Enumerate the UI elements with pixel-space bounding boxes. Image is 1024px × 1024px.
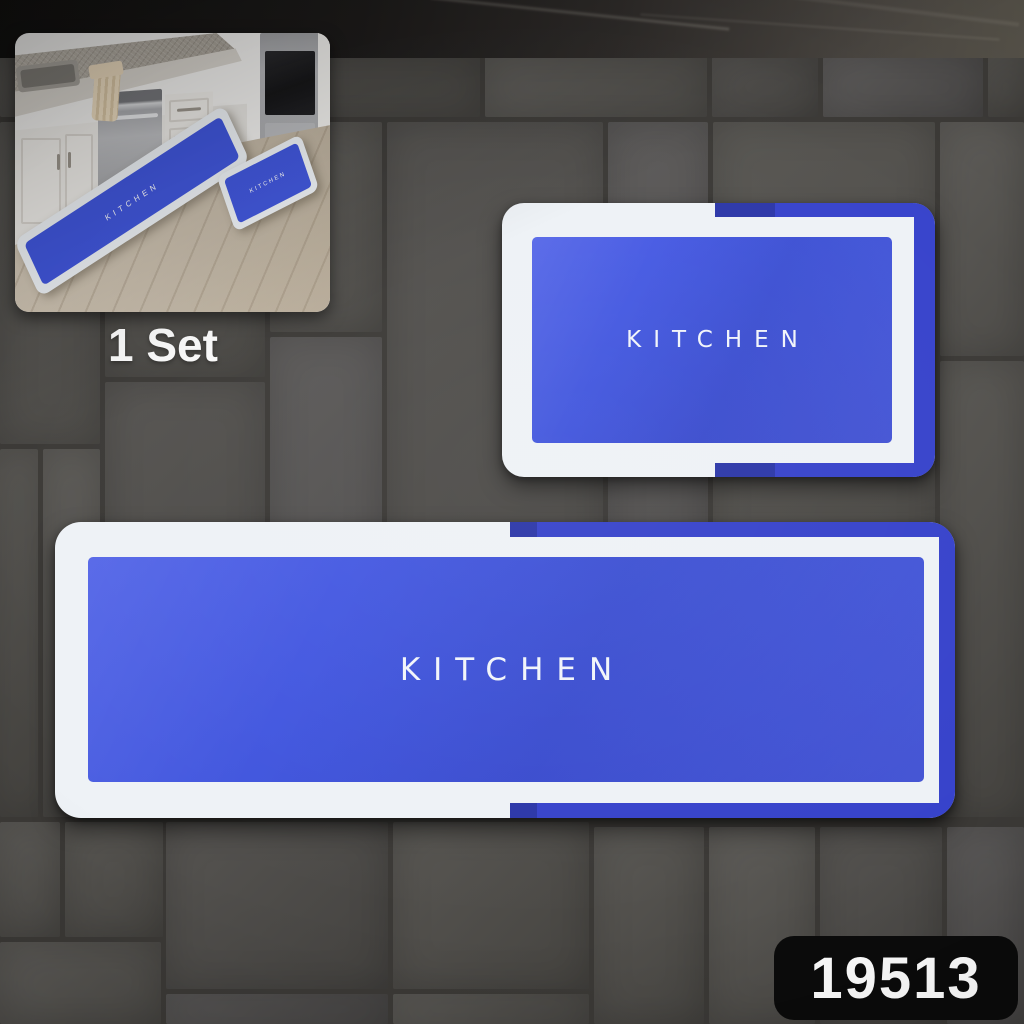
mat-blue-field: KITCHEN [532, 237, 892, 443]
floor-tile [166, 822, 388, 989]
floor-tile [0, 942, 161, 1024]
floor-tile [823, 57, 983, 117]
floor-tile [485, 57, 707, 117]
floor-tile [594, 827, 704, 1024]
oven-glass-door [265, 51, 315, 115]
floor-tile [166, 994, 388, 1024]
kitchen-lifestyle-inset-photo: KITCHEN KITCHEN [15, 33, 330, 312]
mat-navy-accent [510, 803, 537, 818]
mat-navy-accent [715, 463, 775, 477]
mat-blue-border-bottom [510, 803, 955, 818]
product-photo-scene: KITCHEN KITCHEN [0, 0, 1024, 1024]
mat-navy-accent [715, 203, 775, 217]
cabinet-door [21, 138, 61, 224]
marble-vein [781, 0, 1020, 27]
kitchen-print: KITCHEN [88, 557, 924, 782]
floor-tile [940, 122, 1024, 356]
kitchen-print: KITCHEN [532, 237, 892, 443]
cabinet-handle [57, 154, 60, 170]
sink-basin [20, 64, 76, 88]
floor-tile [393, 822, 589, 989]
kitchen-print-text: KITCHEN [400, 652, 625, 688]
floor-tile [988, 57, 1024, 117]
floor-tile [393, 994, 589, 1024]
mat-blue-border-top [510, 522, 955, 537]
sku-number: 19513 [810, 945, 981, 1012]
striped-towel [91, 72, 120, 122]
marble-vein [431, 0, 730, 31]
mat-blue-border-right [939, 522, 955, 818]
set-count-caption: 1 Set [58, 318, 268, 378]
floor-tile [0, 449, 38, 817]
cabinet-handle [68, 152, 71, 168]
sku-plate: 19513 [774, 936, 1018, 1020]
kitchen-print-text: KITCHEN [626, 327, 810, 353]
mat-blue-border-right [914, 203, 935, 477]
large-kitchen-runner-mat: KITCHEN [55, 522, 955, 818]
mat-navy-accent [510, 522, 537, 537]
mat-blue-field: KITCHEN [88, 557, 924, 782]
small-kitchen-mat: KITCHEN [502, 203, 935, 477]
floor-tile [0, 822, 60, 937]
floor-tile [65, 822, 163, 937]
floor-tile [712, 57, 818, 117]
